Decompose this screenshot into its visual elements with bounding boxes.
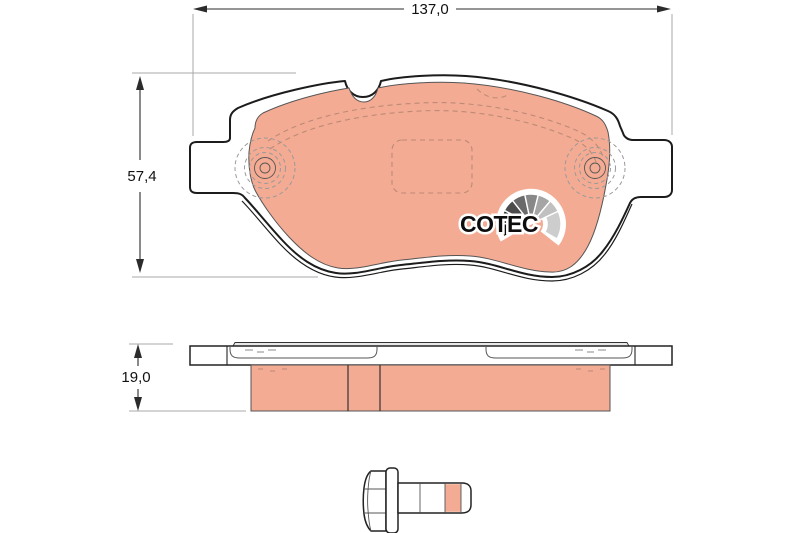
brake-pad-front-view: COTEC	[190, 75, 672, 281]
bolt-head	[363, 471, 386, 531]
bolt-flange	[386, 468, 398, 533]
dimension-height-label: 57,4	[127, 168, 156, 185]
arrowhead-down	[136, 259, 144, 273]
technical-drawing-canvas: COTEC	[0, 0, 800, 533]
dimension-thickness-label: 19,0	[121, 369, 150, 386]
arrowhead-right	[657, 6, 671, 13]
arrowhead-up	[136, 76, 144, 90]
brake-pad-technical-drawing: COTEC	[0, 0, 800, 533]
friction-block-side	[251, 365, 610, 411]
dimension-width-label: 137,0	[411, 1, 449, 18]
brake-pad-side-view	[190, 343, 672, 412]
arrowhead-up	[134, 344, 142, 358]
cotec-logo-text: COTEC	[460, 211, 538, 237]
mounting-bolt	[363, 468, 471, 533]
arrowhead-left	[193, 6, 207, 13]
backplate-strip	[190, 346, 672, 365]
arrowhead-down	[134, 397, 142, 411]
bolt-thread-lock-band	[445, 484, 461, 512]
